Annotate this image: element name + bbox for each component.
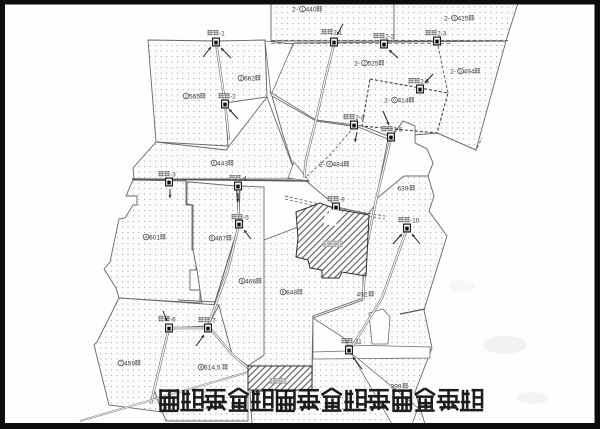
svg-text:-1: -1 <box>219 30 225 37</box>
svg-text:425: 425 <box>458 15 469 22</box>
svg-text:-9: -9 <box>339 196 345 203</box>
svg-text:2-: 2- <box>319 161 325 168</box>
svg-text:-10: -10 <box>410 217 420 224</box>
svg-text:443: 443 <box>217 160 228 167</box>
svg-text:1: 1 <box>301 7 304 12</box>
svg-text:648: 648 <box>286 289 297 296</box>
svg-text:2-6: 2-6 <box>393 126 403 133</box>
svg-text:5: 5 <box>213 161 216 166</box>
svg-text:-2: -2 <box>230 93 236 100</box>
svg-text:5: 5 <box>211 236 214 241</box>
svg-text:399: 399 <box>390 383 401 390</box>
svg-text:492: 492 <box>356 291 367 298</box>
svg-text:484: 484 <box>333 161 344 168</box>
svg-text:2-: 2- <box>292 6 298 13</box>
svg-text:-6: -6 <box>170 316 176 323</box>
svg-text:3: 3 <box>453 16 456 21</box>
svg-text:662: 662 <box>244 75 255 82</box>
svg-text:6: 6 <box>241 279 244 284</box>
svg-text:5: 5 <box>459 69 462 74</box>
svg-text:6: 6 <box>200 365 203 370</box>
svg-text:2-: 2- <box>354 60 360 67</box>
svg-text:4: 4 <box>145 235 148 240</box>
svg-text:-3: -3 <box>170 171 176 178</box>
svg-text:414: 414 <box>398 97 409 104</box>
svg-text:7: 7 <box>120 361 123 366</box>
svg-text:467: 467 <box>215 235 226 242</box>
svg-text:2-2: 2-2 <box>385 33 395 40</box>
svg-text:639: 639 <box>397 185 408 192</box>
svg-text:2-: 2- <box>450 68 456 75</box>
svg-text:466: 466 <box>245 278 256 285</box>
svg-text:565: 565 <box>189 93 200 100</box>
svg-text:-7: -7 <box>210 317 216 324</box>
svg-text:601: 601 <box>149 234 160 241</box>
svg-text:459: 459 <box>124 360 135 367</box>
svg-text:2-: 2- <box>384 97 390 104</box>
svg-text:2: 2 <box>240 76 243 81</box>
svg-text:494: 494 <box>464 68 475 75</box>
svg-text:2: 2 <box>363 61 366 66</box>
svg-text:1: 1 <box>185 94 188 99</box>
svg-text:525: 525 <box>368 60 379 67</box>
svg-text:-4: -4 <box>241 175 247 182</box>
svg-text:2-4: 2-4 <box>355 114 365 121</box>
svg-text:4: 4 <box>328 162 331 167</box>
svg-text:614.5: 614.5 <box>204 364 221 371</box>
svg-text:2-: 2- <box>444 15 450 22</box>
svg-text:-11: -11 <box>353 338 362 345</box>
svg-text:8: 8 <box>282 290 285 295</box>
svg-text:2-3: 2-3 <box>437 30 447 37</box>
svg-text:6: 6 <box>393 98 396 103</box>
svg-text:440: 440 <box>306 6 317 13</box>
svg-text:-5: -5 <box>243 214 249 221</box>
